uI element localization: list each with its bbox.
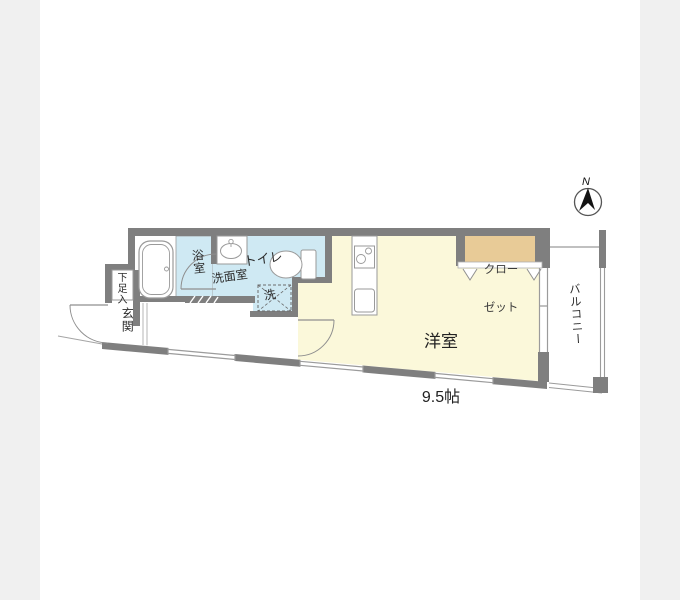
balcony-right-rail bbox=[601, 248, 605, 389]
top-wall bbox=[128, 228, 550, 236]
washbasin-tap bbox=[229, 239, 233, 243]
bottom-wall-seg2 bbox=[235, 354, 300, 367]
washbasin bbox=[217, 236, 247, 264]
kitchen-burner-small bbox=[366, 248, 372, 254]
entrance-door-swing-arc bbox=[70, 305, 108, 343]
washroom-stub-wall bbox=[211, 236, 217, 264]
kitchen-unit bbox=[352, 236, 377, 315]
entrance-door bbox=[70, 305, 108, 343]
left-wall-upper bbox=[128, 228, 135, 270]
entrance-label: 玄関 bbox=[120, 307, 133, 333]
entrance-step-line bbox=[143, 303, 147, 345]
laundry-label: 洗 bbox=[263, 288, 277, 303]
compass-north-label: N bbox=[582, 176, 590, 188]
laundry-bottom-wall bbox=[250, 311, 298, 317]
main-room-size: 9.5帖 bbox=[397, 389, 485, 407]
site-boundary-line bbox=[58, 336, 102, 344]
toilet-right-wall bbox=[325, 236, 332, 283]
left-wall-mid bbox=[105, 264, 112, 303]
balcony-window bbox=[540, 268, 548, 352]
closet-label-line1: クロー bbox=[466, 264, 536, 277]
bathroom-label: 浴室 bbox=[190, 248, 206, 275]
toilet-tank bbox=[301, 250, 316, 279]
shoe-cabinet-label: 下足入 bbox=[115, 272, 126, 305]
bathtub-drain bbox=[165, 267, 169, 271]
window-1 bbox=[168, 348, 235, 361]
balcony-window-bottom-pier bbox=[538, 352, 549, 382]
closet-label-line2: ゼット bbox=[466, 302, 536, 315]
bottom-wall-seg1 bbox=[102, 342, 168, 355]
floorplan-image: 浴室 洗面室 トイレ 洗 下足入 玄関 洋室 9.5帖 クロー ゼット バルコニ… bbox=[0, 0, 680, 600]
kitchen-sink bbox=[355, 289, 375, 312]
bathtub bbox=[139, 241, 173, 298]
balcony-bottom-right-pier bbox=[593, 377, 608, 393]
compass bbox=[575, 188, 602, 216]
closet-left-wall bbox=[456, 236, 465, 266]
kitchen-burner-large bbox=[357, 255, 366, 264]
closet-label: クロー ゼット bbox=[466, 239, 536, 340]
balcony-top-right-pier bbox=[599, 230, 606, 268]
